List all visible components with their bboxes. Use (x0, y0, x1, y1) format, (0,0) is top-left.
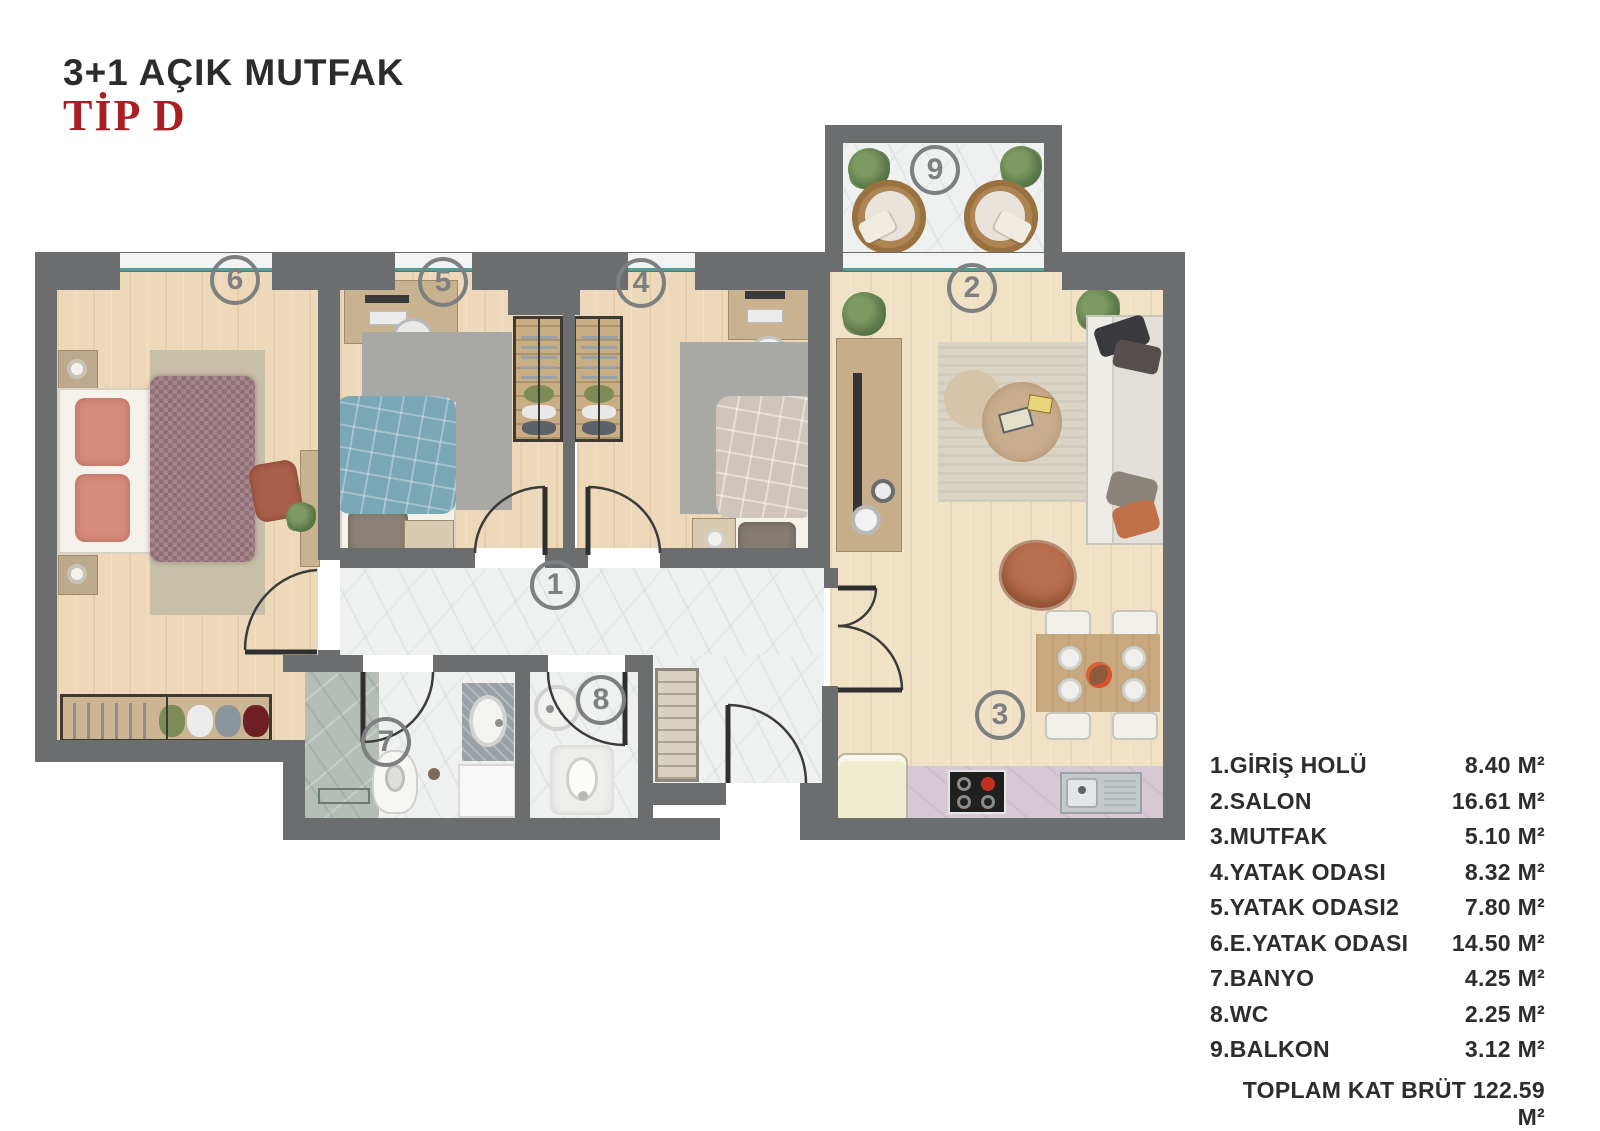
wall-room5-room4 (563, 315, 575, 548)
plate (1122, 678, 1146, 702)
legend-item: 3.MUTFAK 5.10 M² (1210, 823, 1545, 850)
drain-cap (428, 768, 440, 780)
legend-area: 14.50 M² (1452, 930, 1545, 957)
room-number-2-salon: 2 (947, 263, 997, 313)
shoes (582, 421, 616, 435)
legend-item: 6.E.YATAK ODASI 14.50 M² (1210, 930, 1545, 957)
room-number-8-wc: 8 (576, 675, 626, 725)
drainer (1104, 780, 1136, 806)
outer-wall-bottom-left (35, 740, 305, 762)
wall-hall-top (660, 548, 808, 568)
dining-chair (1112, 712, 1158, 740)
burner (981, 777, 995, 791)
faucet (1078, 786, 1086, 794)
room6-wardrobe (60, 694, 272, 742)
plate (1058, 646, 1082, 670)
legend-item: 9.BALKON 3.12 M² (1210, 1036, 1545, 1063)
lamp (67, 564, 87, 584)
legend-label: 4.YATAK ODASI (1210, 859, 1386, 886)
fruit-bowl (1086, 662, 1112, 688)
keyboard (747, 309, 783, 323)
hall-floor (340, 568, 824, 655)
legend-label: 2.SALON (1210, 788, 1312, 815)
wall-bath-top (283, 655, 363, 672)
room-number-4-yatak-odasi: 4 (616, 258, 666, 308)
kitchen-sink (1060, 772, 1142, 814)
monitor (745, 291, 785, 299)
legend: 1.GİRİŞ HOLÜ 8.40 M² 2.SALON 16.61 M² 3.… (1210, 752, 1545, 1131)
wall-pier-t (508, 252, 580, 315)
coffee-table (982, 382, 1062, 462)
legend-area: 8.32 M² (1465, 859, 1545, 886)
outer-wall-bottom-kitchen (806, 818, 1185, 840)
wall-stub (824, 568, 838, 588)
wall-entry-right (800, 783, 824, 840)
bed-blanket (336, 396, 456, 514)
refrigerator (836, 753, 908, 825)
legend-area: 5.10 M² (1465, 823, 1545, 850)
sofa (1086, 315, 1165, 545)
outer-wall-left (35, 252, 57, 762)
plate (1122, 646, 1146, 670)
legend-item: 4.YATAK ODASI 8.32 M² (1210, 859, 1545, 886)
squat-toilet (550, 745, 614, 815)
legend-totals: TOPLAM KAT BRÜT 122.59 M² TOPLAM DAİRE B… (1210, 1077, 1545, 1131)
floorplan-page: 3+1 AÇIK MUTFAK TİP D (0, 0, 1600, 1131)
plant (842, 292, 886, 336)
wicker-chair (852, 180, 926, 254)
tv-console (836, 338, 902, 552)
page-title: 3+1 AÇIK MUTFAK TİP D (63, 52, 405, 141)
legend-label: 6.E.YATAK ODASI (1210, 930, 1408, 957)
legend-item: 5.YATAK ODASI2 7.80 M² (1210, 894, 1545, 921)
plate (1058, 678, 1082, 702)
balcony-wall-left (825, 125, 843, 262)
legend-area: 8.40 M² (1465, 752, 1545, 779)
bed-blanket (150, 376, 255, 562)
dining-table (1036, 634, 1160, 712)
nightstand (58, 350, 98, 390)
legend-area: 7.80 M² (1465, 894, 1545, 921)
legend-label: 9.BALKON (1210, 1036, 1330, 1063)
wall-salon-entry (822, 686, 838, 840)
balcony-sliding-door (843, 253, 1044, 271)
sink-bowl (469, 695, 507, 747)
wall-bath-top (433, 655, 548, 672)
book (1027, 394, 1053, 414)
burner (981, 795, 995, 809)
clothes (243, 705, 269, 737)
shower-drain (318, 788, 370, 804)
room5-wardrobe (513, 316, 563, 442)
wicker-chair (964, 180, 1038, 254)
room-number-1-giris-holu: 1 (530, 560, 580, 610)
clothes (159, 705, 185, 737)
shelf-rails (521, 333, 557, 379)
legend-item: 1.GİRİŞ HOLÜ 8.40 M² (1210, 752, 1545, 779)
room-number-7-banyo: 7 (361, 717, 411, 767)
wall-room6-hall (318, 252, 340, 560)
room-number-9-balkon: 9 (910, 145, 960, 195)
monitor (365, 295, 409, 303)
faucet (546, 705, 554, 713)
legend-item: 8.WC 2.25 M² (1210, 1001, 1545, 1028)
legend-area: 3.12 M² (1465, 1036, 1545, 1063)
shelf-rails (581, 333, 617, 379)
legend-label: 5.YATAK ODASI2 (1210, 894, 1399, 921)
title-line2: TİP D (63, 90, 405, 141)
wall-pier (695, 252, 825, 290)
room-number-5-yatak-odasi2: 5 (418, 257, 468, 307)
title-line1: 3+1 AÇIK MUTFAK (63, 52, 405, 94)
plant (286, 502, 316, 532)
tray (998, 406, 1034, 434)
total-kat-brut: TOPLAM KAT BRÜT 122.59 M² (1210, 1077, 1545, 1131)
room-number-6-e-yatak-odasi: 6 (210, 255, 260, 305)
legend-item: 2.SALON 16.61 M² (1210, 788, 1545, 815)
legend-label: 1.GİRİŞ HOLÜ (1210, 752, 1367, 779)
burner (957, 795, 971, 809)
wall-entry-bottom (638, 783, 726, 805)
vase (871, 479, 895, 503)
hanging-rail (73, 703, 153, 739)
burner (957, 777, 971, 791)
lamp (67, 359, 87, 379)
legend-item: 7.BANYO 4.25 M² (1210, 965, 1545, 992)
plate (705, 529, 725, 549)
faucet (495, 719, 503, 727)
legend-label: 7.BANYO (1210, 965, 1314, 992)
legend-area: 16.61 M² (1452, 788, 1545, 815)
outer-wall-right (1163, 252, 1185, 840)
nightstand (58, 555, 98, 595)
shoe-cabinet (655, 668, 699, 782)
clothes (187, 705, 213, 737)
dining-chair (1045, 712, 1091, 740)
shoes (582, 405, 616, 419)
wall-hall-top (340, 548, 475, 568)
clothes (584, 385, 614, 403)
tv-screen (853, 373, 862, 525)
bed-pillow (75, 474, 130, 542)
clothes (215, 705, 241, 737)
bathroom-vanity (462, 683, 514, 761)
legend-label: 8.WC (1210, 1001, 1269, 1028)
washing-machine (458, 764, 516, 818)
bed-pillow (75, 398, 130, 466)
outer-wall-bottom-mid (283, 818, 720, 840)
legend-area: 2.25 M² (1465, 1001, 1545, 1028)
room-number-3-mutfak: 3 (975, 690, 1025, 740)
sofa-pillow (1112, 339, 1163, 376)
clothes (524, 385, 554, 403)
legend-label: 3.MUTFAK (1210, 823, 1327, 850)
stove (948, 770, 1006, 814)
bed-blanket (716, 396, 816, 518)
wall-bath-wc (515, 672, 530, 818)
vase (851, 505, 881, 535)
shoes (522, 405, 556, 419)
room4-wardrobe (573, 316, 623, 442)
wc-sink (534, 685, 580, 731)
balcony-wall-top (825, 125, 1062, 143)
toilet-bowl (385, 764, 405, 792)
legend-area: 4.25 M² (1465, 965, 1545, 992)
wall-room4-salon (808, 252, 830, 568)
shoes (522, 421, 556, 435)
balcony-wall-right (1044, 125, 1062, 262)
drain (578, 791, 588, 801)
